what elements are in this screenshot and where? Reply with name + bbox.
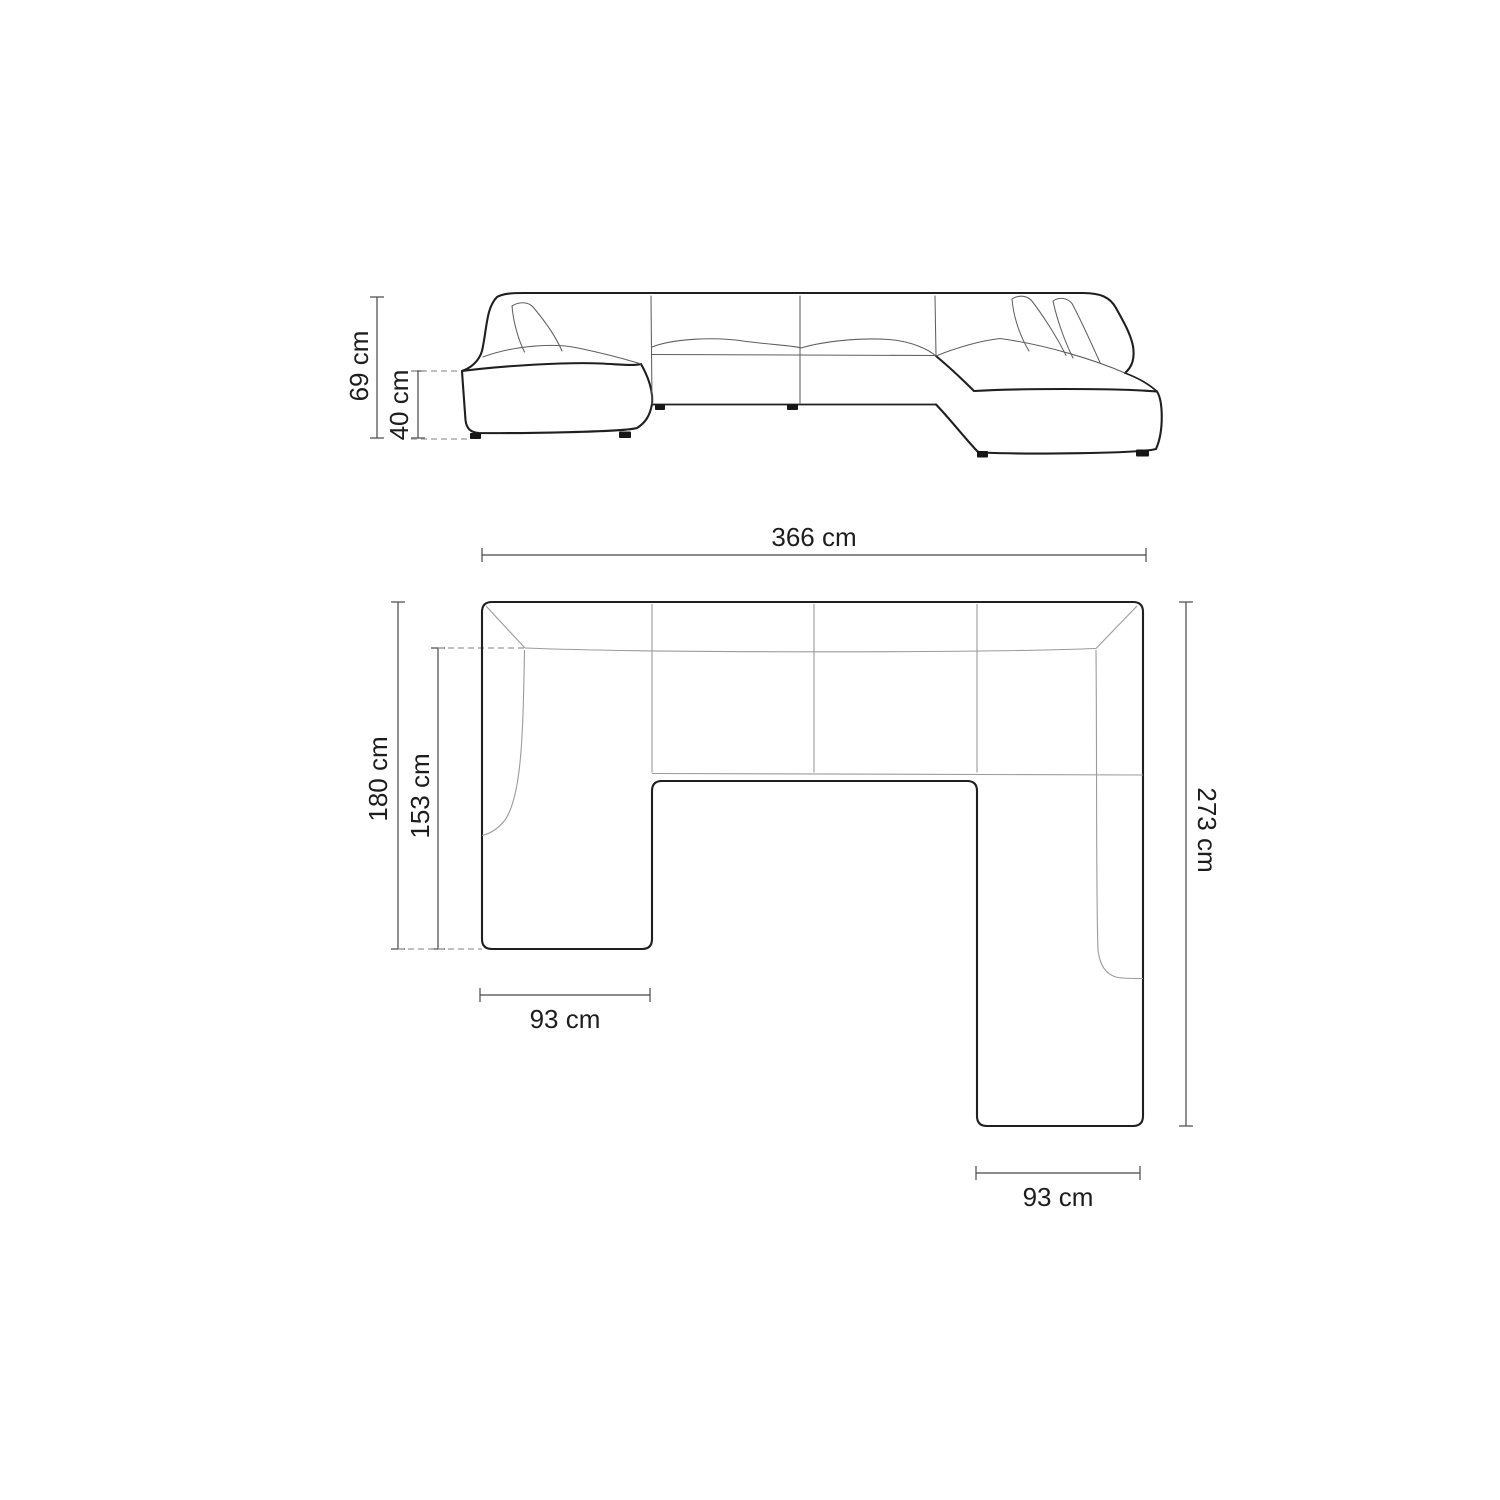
dim-label-total-height: 69 cm [344, 331, 374, 402]
dim-left-depth: 180 cm [363, 602, 405, 949]
dim-left-chaise-width: 93 cm [480, 988, 650, 1034]
dim-left-inner-depth: 153 cm [398, 648, 527, 949]
dim-label-left-depth: 180 cm [363, 736, 393, 821]
dim-label-right-depth: 273 cm [1192, 787, 1222, 872]
sofa-foot [619, 432, 631, 439]
sofa-foot [655, 405, 665, 411]
sofa-dimensions-diagram: 69 cm 40 cm [0, 0, 1500, 1500]
sofa-dimension-sheet: 69 cm 40 cm [0, 0, 1500, 1500]
sofa-elevation-drawing [462, 293, 1162, 458]
dim-seat-height: 40 cm [384, 370, 469, 441]
dim-label-left-inner-depth: 153 cm [405, 753, 435, 838]
seat-platform-edge [652, 355, 936, 356]
dim-total-width: 366 cm [482, 522, 1146, 562]
middle-seat-cushion-curves [652, 339, 936, 356]
sofa-foot [787, 405, 798, 411]
dim-right-chaise-width: 93 cm [976, 1166, 1140, 1212]
top-plan-view: 366 cm 180 cm 153 cm 273 cm [363, 522, 1222, 1212]
left-seat-cushion-curve [483, 345, 641, 364]
sofa-plan-drawing [482, 602, 1143, 1126]
sofa-foot [470, 433, 481, 439]
left-chaise-outline [462, 363, 652, 433]
backrest-inner-edge [525, 648, 1096, 652]
dim-total-height: 69 cm [344, 297, 384, 438]
left-back-cushion [512, 303, 562, 352]
right-arm-to-chaise-edge [1125, 373, 1157, 392]
dim-label-right-chaise-width: 93 cm [1023, 1182, 1094, 1212]
right-armrest-inner-edge [1096, 650, 1143, 979]
right-back-cushion-1 [1012, 296, 1066, 355]
dim-label-total-width: 366 cm [771, 522, 856, 552]
plan-seat-front-edge [652, 774, 1143, 776]
front-elevation-view: 69 cm 40 cm [344, 293, 1162, 458]
right-back-cushion-2 [1053, 298, 1100, 362]
sofa-foot [1136, 450, 1149, 457]
seam-right [935, 296, 936, 356]
backrest-inner-corner-right [1096, 606, 1137, 649]
backrest-outline [462, 293, 1134, 373]
plan-outer-outline [482, 602, 1143, 1126]
left-armrest-inner-edge [482, 650, 525, 836]
dim-label-seat-height: 40 cm [384, 370, 414, 441]
dim-label-left-chaise-width: 93 cm [530, 1004, 601, 1034]
sofa-foot [977, 451, 988, 458]
dim-right-depth: 273 cm [1179, 602, 1222, 1126]
backrest-inner-corner-left [486, 606, 525, 648]
